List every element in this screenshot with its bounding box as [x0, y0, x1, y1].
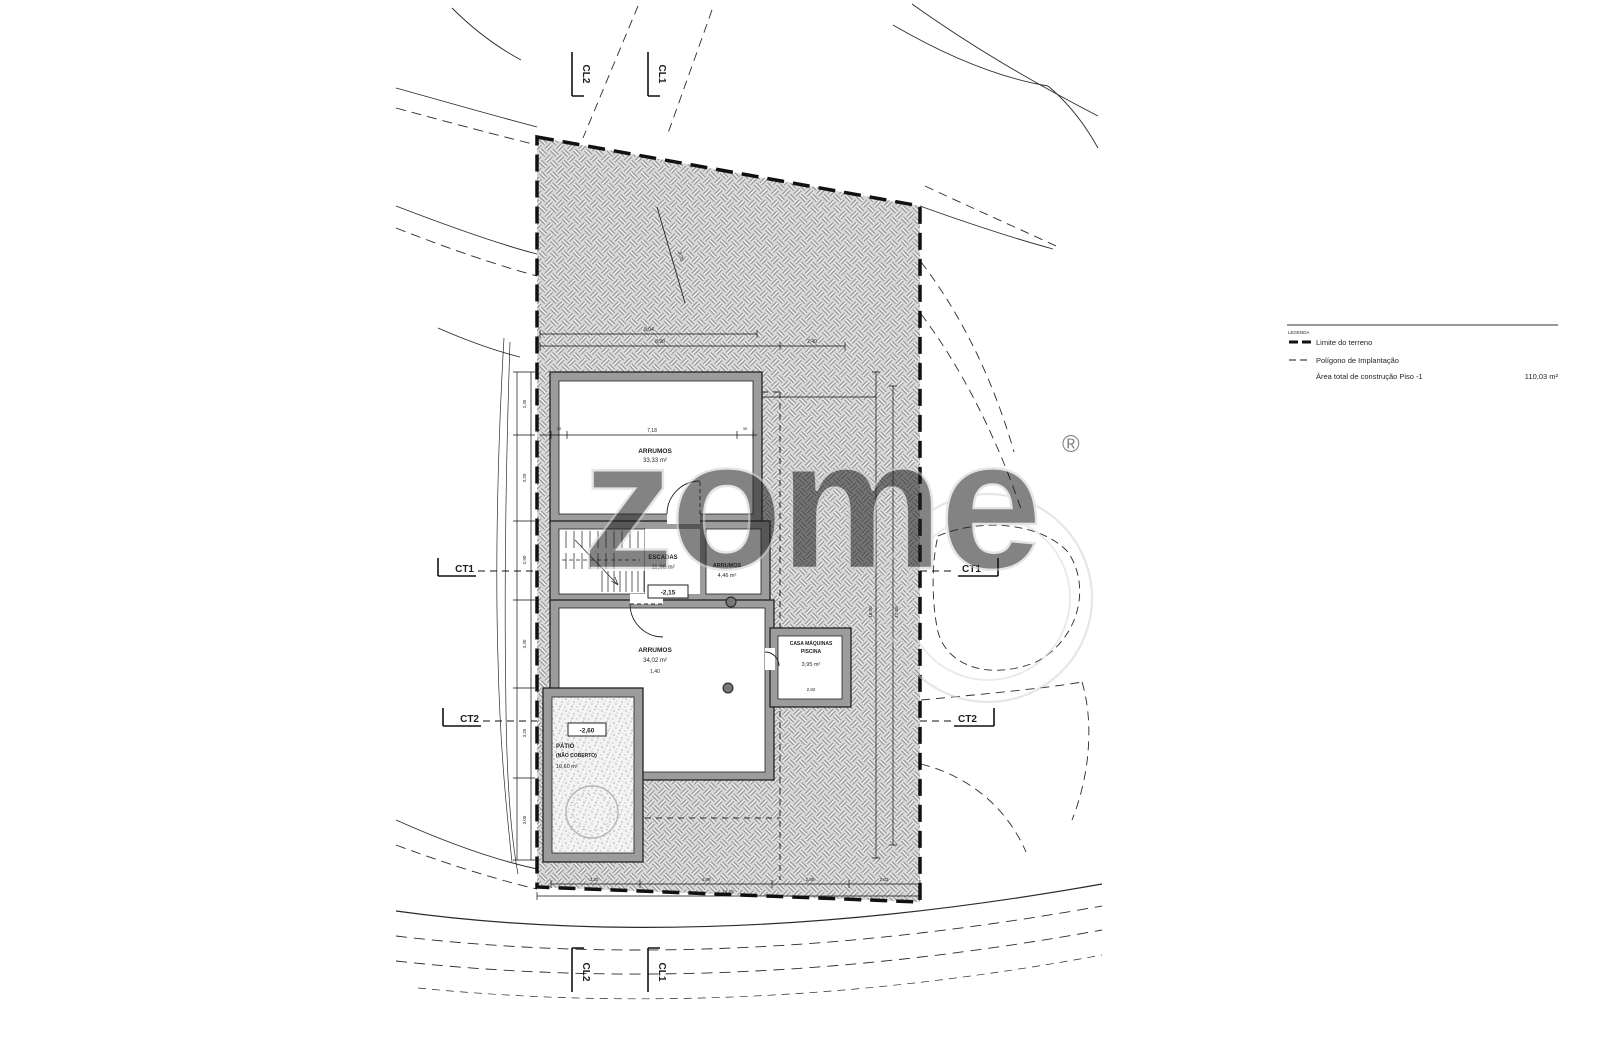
- room-area-pool-plant: 3,95 m²: [802, 662, 821, 668]
- room-area-storage-main: 34,02 m²: [643, 658, 667, 664]
- legend-item-label: Área total de construção Piso -1: [1316, 372, 1423, 381]
- section-label: CL2: [580, 65, 591, 84]
- contour-line: [497, 338, 512, 862]
- section-cut-line: [667, 10, 712, 136]
- dim-label: 2,90: [522, 555, 527, 564]
- section-label: CL1: [656, 963, 667, 982]
- section-marker-cl2-top: CL2: [572, 52, 591, 96]
- section-label: CL1: [656, 65, 667, 84]
- room-label-patio-2: (NÃO COBERTO): [556, 752, 597, 759]
- contour-line: [921, 682, 1082, 700]
- dim-label: 3,20: [522, 473, 527, 482]
- dim-label: 2,82: [807, 687, 816, 692]
- road-edge-line: [418, 955, 1102, 999]
- contour-line: [505, 342, 518, 874]
- dim-label: 3,05: [522, 815, 527, 824]
- room-area-patio: 10,60 m²: [556, 764, 578, 770]
- legend: LEGENDA Limite do terreno Polígono de Im…: [1287, 325, 1558, 381]
- section-label: CL2: [580, 963, 591, 982]
- road-edge-line: [396, 906, 1102, 950]
- site-plan-sheet: 3,70: [0, 0, 1600, 1062]
- contour-line: [396, 228, 537, 276]
- dim-label: 1,40: [650, 669, 660, 675]
- section-marker-ct2-left: CT2: [443, 708, 537, 726]
- room-label-pool-plant: CASA MÁQUINAS: [790, 640, 833, 647]
- contour-line: [396, 845, 537, 889]
- section-marker-cl1-top: CL1: [648, 52, 667, 96]
- room-label-storage-main: ARRUMOS: [638, 647, 672, 654]
- legend-item-label: Limite do terreno: [1316, 338, 1372, 347]
- contour-line: [396, 108, 537, 145]
- level-value-patio: -2,60: [580, 728, 595, 735]
- room-label-pool-plant-2: PISCINA: [801, 649, 822, 655]
- contour-line: [925, 186, 1056, 246]
- contour-line: [1048, 86, 1098, 148]
- contour-line: [921, 764, 1026, 852]
- dim-label: 2,40: [807, 339, 817, 345]
- door-opening: [765, 648, 775, 670]
- section-marker-cl2-bottom: CL2: [572, 948, 591, 992]
- dim-label: 4,89: [702, 877, 711, 882]
- legend-heading: LEGENDA: [1288, 330, 1310, 335]
- dim-label: 8,90: [655, 339, 665, 345]
- section-marker-ct2-right: CT2: [920, 708, 994, 726]
- dim-label: 2,63: [880, 877, 889, 882]
- dim-label: 14,19: [722, 889, 734, 894]
- watermark-registered-icon: ®: [1062, 431, 1080, 458]
- contour-line: [438, 328, 520, 357]
- dim-label: 3,30: [590, 877, 599, 882]
- contour-line: [920, 206, 1053, 249]
- legend-item-value: 110,03 m²: [1525, 372, 1559, 381]
- site-plan-drawing: 3,70: [0, 0, 1600, 1062]
- legend-item-label: Polígono de Implantação: [1316, 356, 1399, 365]
- road-edge-line: [396, 930, 1102, 974]
- dim-label: 30: [557, 426, 562, 431]
- contour-line: [912, 4, 1098, 116]
- dim-label: 2,85: [806, 877, 815, 882]
- dim-label: 8,04: [644, 327, 654, 333]
- patio-floor-gravel: [552, 697, 634, 853]
- column: [723, 683, 733, 693]
- contour-line: [396, 88, 537, 127]
- watermark-text: zome: [582, 402, 1039, 608]
- contour-line: [452, 8, 521, 60]
- section-marker-cl1-bottom: CL1: [648, 948, 667, 992]
- contour-line: [1072, 682, 1089, 820]
- dim-label: 2,35: [522, 399, 527, 408]
- dim-label: 3,25: [522, 728, 527, 737]
- section-label: CT1: [455, 564, 474, 575]
- contour-line: [396, 206, 537, 254]
- level-marker-patio: -2,60: [568, 723, 606, 736]
- contour-line: [893, 25, 1048, 86]
- room-label-patio: PÁTIO: [556, 743, 575, 750]
- dim-label: 3,30: [522, 639, 527, 648]
- section-label: CT2: [460, 714, 479, 725]
- section-label: CT2: [958, 714, 977, 725]
